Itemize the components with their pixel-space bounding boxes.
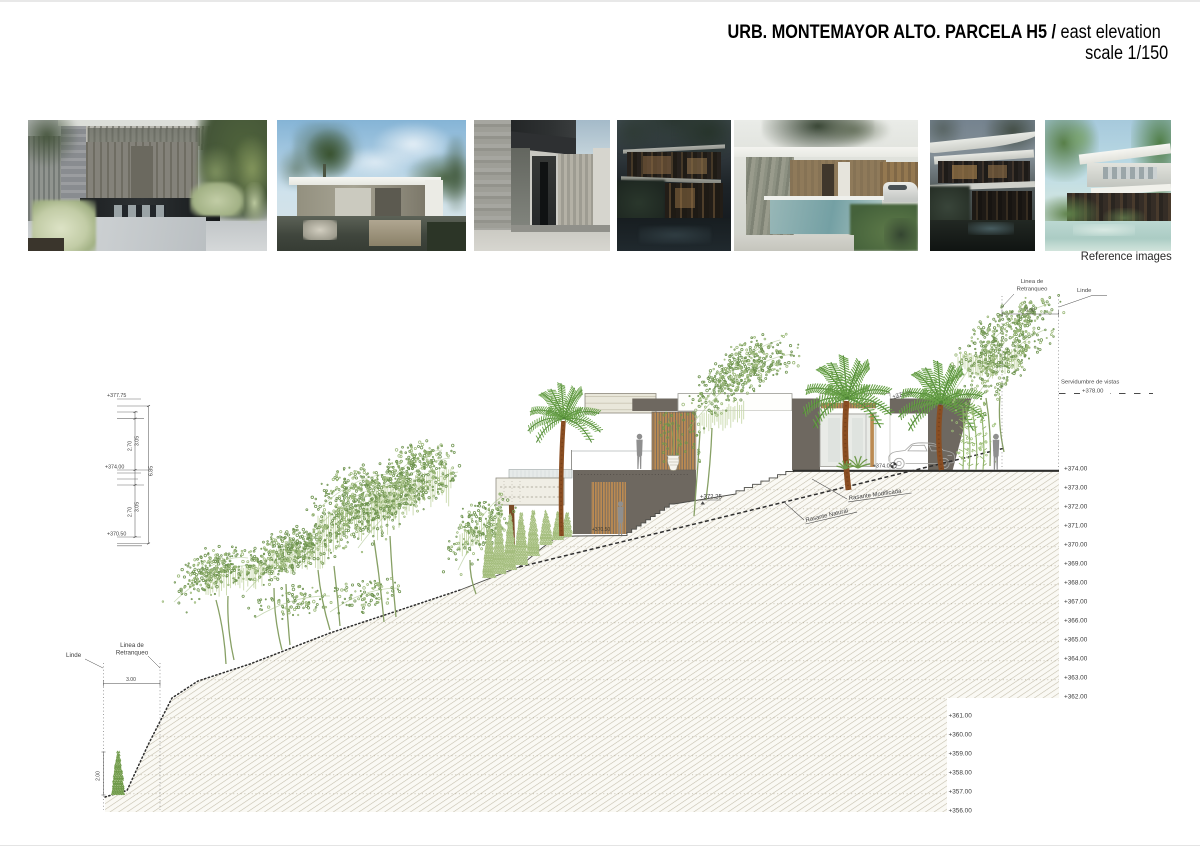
svg-text:+361.00: +361.00 <box>949 713 973 720</box>
svg-text:+374.00: +374.00 <box>1064 466 1088 473</box>
svg-text:+357.00: +357.00 <box>949 789 973 796</box>
svg-text:+367.00: +367.00 <box>1064 599 1088 606</box>
svg-text:Linde: Linde <box>1077 288 1092 294</box>
svg-text:+358.00: +358.00 <box>949 770 973 777</box>
svg-text:+364.00: +364.00 <box>1064 656 1088 663</box>
svg-text:6.85: 6.85 <box>149 466 155 476</box>
svg-text:+366.00: +366.00 <box>1064 618 1088 625</box>
svg-text:3.00: 3.00 <box>126 677 136 683</box>
svg-text:3.00: 3.00 <box>1025 308 1035 314</box>
svg-text:+365.00: +365.00 <box>1064 637 1088 644</box>
svg-text:+370.50: +370.50 <box>592 527 610 533</box>
svg-text:+356.00: +356.00 <box>949 808 973 815</box>
svg-text:+374.00: +374.00 <box>105 465 124 471</box>
svg-text:Retranqueo: Retranqueo <box>116 650 149 657</box>
svg-text:2.00: 2.00 <box>96 771 102 781</box>
svg-text:Linde: Linde <box>66 652 82 659</box>
svg-text:Servidumbre de vistas: Servidumbre de vistas <box>1061 380 1119 386</box>
svg-text:2.70: 2.70 <box>128 441 134 451</box>
svg-text:+369.00: +369.00 <box>1064 561 1088 568</box>
svg-text:2.70: 2.70 <box>128 507 134 517</box>
svg-text:+371.00: +371.00 <box>1064 523 1088 530</box>
svg-text:+377.75: +377.75 <box>107 393 126 399</box>
svg-text:+374.0: +374.0 <box>873 464 890 470</box>
svg-text:+363.00: +363.00 <box>1064 675 1088 682</box>
svg-text:+370.50: +370.50 <box>107 532 126 538</box>
svg-text:3.05: 3.05 <box>135 502 141 512</box>
svg-text:+368.00: +368.00 <box>1064 580 1088 587</box>
svg-text:Retranqueo: Retranqueo <box>1017 287 1049 293</box>
svg-text:Linea de: Linea de <box>120 642 144 649</box>
svg-text:Linea de: Linea de <box>1021 279 1044 285</box>
svg-text:+360.00: +360.00 <box>949 732 973 739</box>
svg-text:+362.00: +362.00 <box>1064 694 1088 701</box>
svg-text:+372.00: +372.00 <box>1064 504 1088 511</box>
svg-text:3.05: 3.05 <box>135 436 141 446</box>
svg-text:+378.00: +378.00 <box>1082 389 1104 395</box>
svg-text:+373.00: +373.00 <box>1064 485 1088 492</box>
svg-text:+370.00: +370.00 <box>1064 542 1088 549</box>
svg-text:+359.00: +359.00 <box>949 751 973 758</box>
svg-text:+372.25: +372.25 <box>700 495 723 501</box>
